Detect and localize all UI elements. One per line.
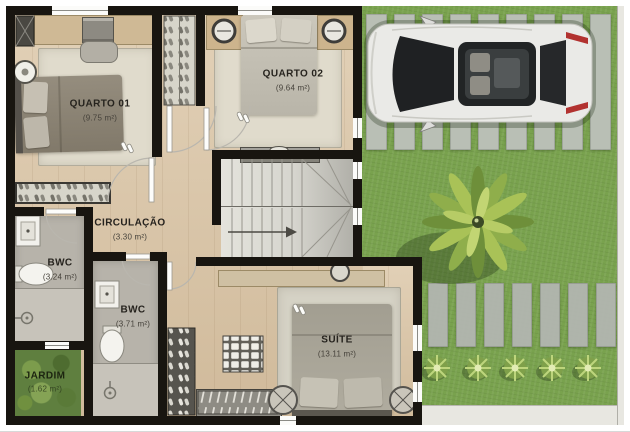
door-opening <box>280 416 296 425</box>
wall <box>353 257 422 266</box>
door-arc <box>46 212 77 243</box>
door-arc <box>206 106 250 150</box>
wall <box>196 257 353 266</box>
room-label-jardim: JARDIM <box>25 371 66 382</box>
room-area-jardim: (1.62 m²) <box>28 385 62 394</box>
room-area-quarto01: (9.75 m²) <box>83 114 117 123</box>
room-label-suite: SUÍTE <box>321 335 352 346</box>
bwc1-fixtures <box>15 216 53 324</box>
wall <box>84 207 93 416</box>
room-label-bwc1: BWC <box>47 258 72 269</box>
floor-plan: QUARTO 01 (9.75 m²) QUARTO 02 (9.64 m²) … <box>0 0 630 432</box>
window <box>238 6 272 15</box>
room-label-bwc2: BWC <box>120 305 145 316</box>
room-area-quarto02: (9.64 m²) <box>276 84 310 93</box>
window <box>413 325 422 351</box>
wall <box>6 207 44 216</box>
wall <box>212 150 362 159</box>
wall <box>152 6 162 157</box>
window <box>353 208 362 225</box>
door-leaf <box>204 108 209 150</box>
room-label-quarto01: QUARTO 01 <box>70 99 131 110</box>
window <box>52 6 108 15</box>
door-leaf <box>149 158 154 202</box>
stairs <box>221 159 353 257</box>
slipper-icon <box>298 306 305 316</box>
door-leaf <box>46 209 77 214</box>
room-label-circulacao: CIRCULAÇÃO <box>94 218 165 229</box>
window <box>45 342 69 349</box>
toilet-icon <box>100 330 124 362</box>
shoe-rack <box>16 183 110 203</box>
wall <box>6 416 422 425</box>
bwc2-fixtures <box>95 281 124 399</box>
door-leaf <box>167 106 172 152</box>
room-area-circulacao: (3.30 m²) <box>113 233 147 242</box>
window <box>353 118 362 138</box>
door-arc <box>108 158 152 202</box>
wall <box>84 252 126 261</box>
door-leaf <box>167 262 172 290</box>
hanging-clothes <box>198 391 278 414</box>
cube-shelf <box>223 336 263 372</box>
window <box>353 162 362 179</box>
plan-detail-art <box>0 0 630 431</box>
shoe-closet <box>168 328 195 415</box>
wall <box>196 6 205 106</box>
room-area-bwc1: (3.24 m²) <box>43 273 77 282</box>
slipper-icon <box>126 144 133 154</box>
door-arc <box>122 257 150 285</box>
wall <box>212 150 221 225</box>
window <box>413 382 422 402</box>
door-arc <box>169 262 196 289</box>
room-area-suite: (13.11 m²) <box>318 350 356 359</box>
room-label-quarto02: QUARTO 02 <box>263 69 324 80</box>
door-leaf <box>122 254 150 259</box>
wardrobe-box <box>16 16 34 46</box>
wall <box>158 252 167 416</box>
room-area-bwc2: (3.71 m²) <box>116 320 150 329</box>
